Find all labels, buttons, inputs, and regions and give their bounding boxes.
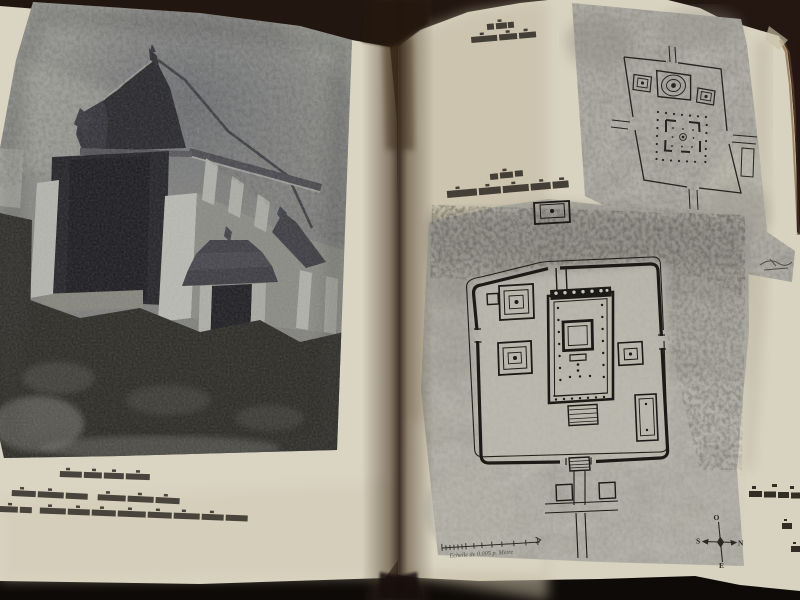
svg-text:O: O <box>714 513 720 522</box>
svg-text:N: N <box>738 539 744 548</box>
svg-text:S: S <box>696 537 700 546</box>
svg-text:E: E <box>719 561 724 570</box>
